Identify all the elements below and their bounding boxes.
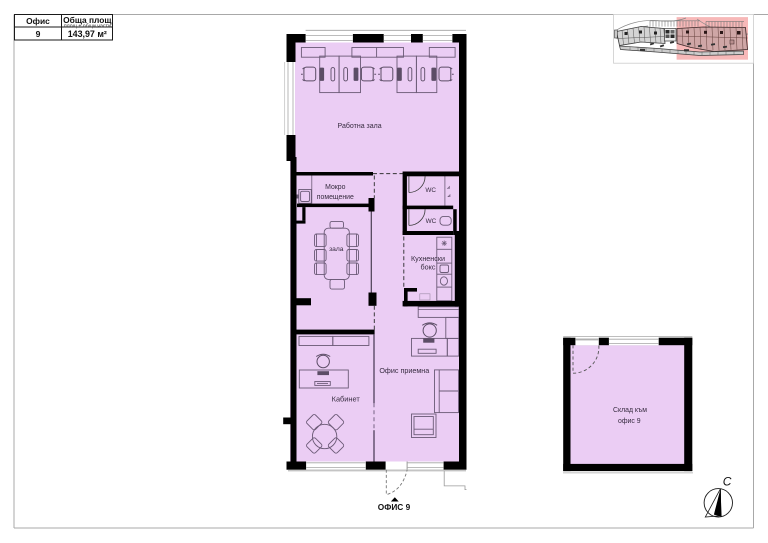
svg-text:помещение: помещение: [317, 194, 354, 201]
svg-text:WC: WC: [426, 218, 437, 225]
svg-text:Офис: Офис: [26, 16, 50, 26]
svg-text:Работна зала: Работна зала: [338, 122, 382, 130]
svg-text:Офис приемна: Офис приемна: [379, 366, 429, 375]
svg-text:бокс: бокс: [421, 263, 436, 272]
svg-text:WC: WC: [425, 187, 436, 194]
svg-text:9: 9: [36, 29, 41, 39]
svg-text:ОФИС 9: ОФИС 9: [378, 502, 411, 512]
svg-text:офис 9: офис 9: [618, 418, 641, 425]
svg-text:Мокро: Мокро: [325, 184, 345, 191]
svg-text:С: С: [723, 475, 732, 489]
svg-text:Кабинет: Кабинет: [332, 394, 361, 403]
svg-text:143,97 м²: 143,97 м²: [68, 29, 107, 39]
svg-text:Склад към: Склад към: [613, 407, 647, 414]
svg-text:зала: зала: [329, 246, 344, 253]
